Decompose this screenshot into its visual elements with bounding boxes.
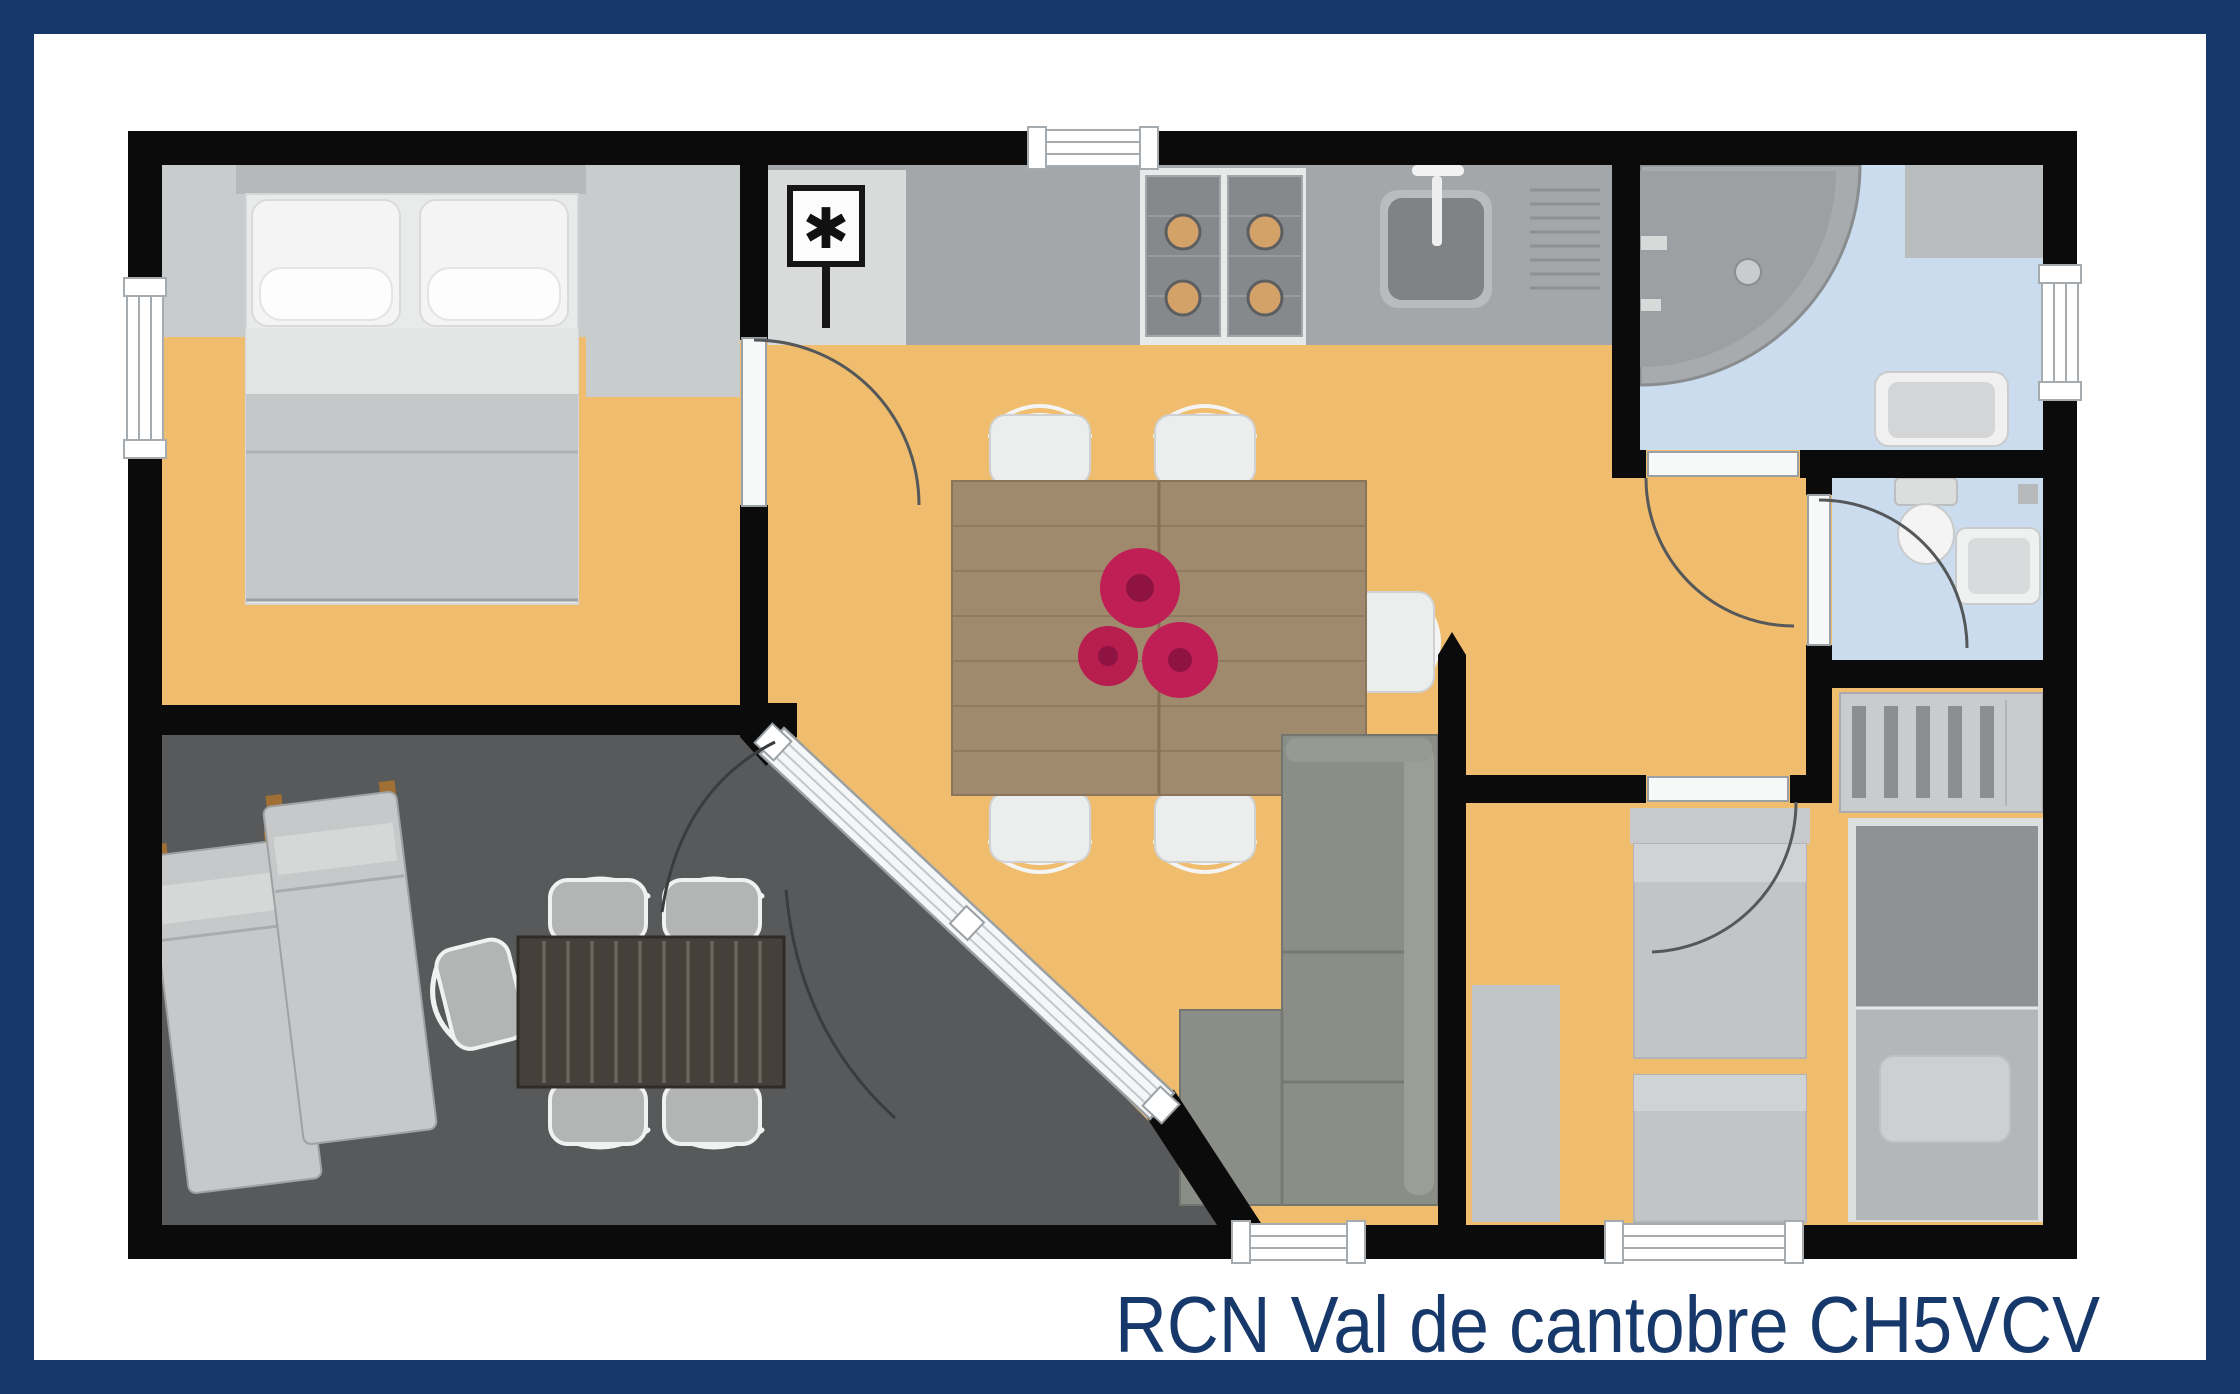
door-bathroom <box>1648 452 1798 476</box>
window-bedroom1-left <box>124 278 166 458</box>
single-bed-a-headboard <box>1630 808 1810 844</box>
border-left <box>0 0 34 1394</box>
wall-top-left <box>128 131 1028 165</box>
window-bathroom-right <box>2039 265 2081 400</box>
shower-tap-icon <box>1640 298 1662 312</box>
bunk-bed <box>1848 818 2043 1222</box>
bathroom-cabinet <box>1905 165 2043 258</box>
patio-chair-top-1 <box>550 879 648 942</box>
bed-sheet-fold <box>246 328 578 394</box>
flower-center <box>1098 646 1118 666</box>
single-bed-b <box>1634 1075 1806 1222</box>
wardrobe <box>1840 693 2043 812</box>
wall-bottom-left <box>128 1225 1235 1259</box>
single-bed-a-sheet <box>1634 844 1806 882</box>
shower-faucet-icon <box>1640 235 1668 251</box>
dining-chair-bottom-2 <box>1155 792 1255 872</box>
toilet <box>1895 478 1957 564</box>
washbasin <box>1875 372 2008 446</box>
asterisk-icon: ✱ <box>803 197 850 260</box>
patio-chair-bottom-2 <box>664 1082 762 1147</box>
bunk-top-mattress <box>1856 826 2038 1008</box>
toilet-paper-holder <box>2018 484 2038 504</box>
dining-chair-top-2 <box>1155 406 1255 485</box>
double-bed <box>236 164 586 604</box>
wardrobe-slat <box>1852 706 1866 798</box>
floorplan-canvas: ✱ <box>0 0 2240 1394</box>
faucet-stem <box>1432 176 1442 246</box>
wall-bedroom2-top-right <box>1790 775 1832 803</box>
caption: RCN Val de cantobre CH5VCV <box>1115 1280 2101 1369</box>
toilet-bowl <box>1898 504 1954 564</box>
burner <box>1248 281 1282 315</box>
wc-basin <box>1956 528 2040 604</box>
wall-bottom-right <box>1800 1225 2077 1259</box>
shower-drain <box>1735 259 1761 285</box>
wall-living-bedroom2 <box>1438 655 1466 1225</box>
border-top <box>0 0 2240 34</box>
burner <box>1166 281 1200 315</box>
wardrobe-slat <box>1884 706 1898 798</box>
window-kitchen-top <box>1028 127 1158 169</box>
patio-table <box>518 937 784 1087</box>
wardrobe-slat <box>1916 706 1930 798</box>
toilet-tank <box>1895 478 1957 505</box>
door-bedroom2 <box>1648 777 1788 801</box>
wall-bedroom1-right-upper <box>740 131 768 340</box>
wall-left-lower <box>128 458 162 1259</box>
patio-table-top <box>518 937 784 1087</box>
faucet-bar <box>1412 165 1464 176</box>
wall-right-upper <box>2043 131 2077 265</box>
wc-basin-bowl <box>1968 538 2030 594</box>
burner <box>1166 215 1200 249</box>
burner <box>1248 215 1282 249</box>
wall-right-lower <box>2043 400 2077 1259</box>
dining-chair-top-1 <box>990 406 1090 485</box>
wall-wc-left-upper <box>1806 478 1832 495</box>
wall-bathroom-left <box>1612 131 1640 478</box>
pillow-roll-left <box>260 268 392 320</box>
wall-bottom-middle <box>1362 1225 1608 1259</box>
window-living-bottom <box>1232 1221 1365 1263</box>
flower-center <box>1168 648 1192 672</box>
door-wc <box>1808 495 1830 645</box>
door-bedroom1 <box>742 338 766 506</box>
wall-left-upper <box>128 131 162 278</box>
wardrobe-slat <box>1980 706 1994 798</box>
wardrobe-slat <box>1948 706 1962 798</box>
bedside-mat <box>1472 985 1560 1222</box>
sofa-armrest <box>1286 738 1432 762</box>
sofa-back-cushion <box>1404 745 1434 1195</box>
wall-bedroom2-top-left <box>1438 775 1646 803</box>
dining-chair-bottom-1 <box>990 792 1090 872</box>
gas-stove <box>1140 168 1306 345</box>
pillow-roll-right <box>428 268 560 320</box>
flower-center <box>1126 574 1154 602</box>
border-right <box>2206 0 2240 1394</box>
window-bedroom2-bottom <box>1605 1221 1803 1263</box>
washbasin-bowl <box>1888 382 1995 438</box>
bed-headboard <box>236 164 586 194</box>
bedroom1-gray-band-right <box>586 165 740 397</box>
patio-chair-top-2 <box>664 879 762 942</box>
wall-wc-bottom <box>1806 660 2077 688</box>
single-bed-b-sheet <box>1634 1075 1806 1111</box>
wardrobe-body <box>1840 693 2043 812</box>
bunk-pillow <box>1880 1056 2010 1142</box>
wall-bedroom1-right-lower <box>740 505 768 735</box>
floorplan-page: ✱ <box>0 0 2240 1394</box>
patio-chair-bottom-1 <box>550 1082 648 1147</box>
boiler-sign-stem <box>822 264 830 328</box>
wall-bathroom-bottom-left <box>1612 450 1646 478</box>
bed-blanket <box>246 394 578 600</box>
wall-bedroom1-bottom <box>128 705 768 735</box>
wall-bathroom-bottom-right <box>1800 450 2043 478</box>
